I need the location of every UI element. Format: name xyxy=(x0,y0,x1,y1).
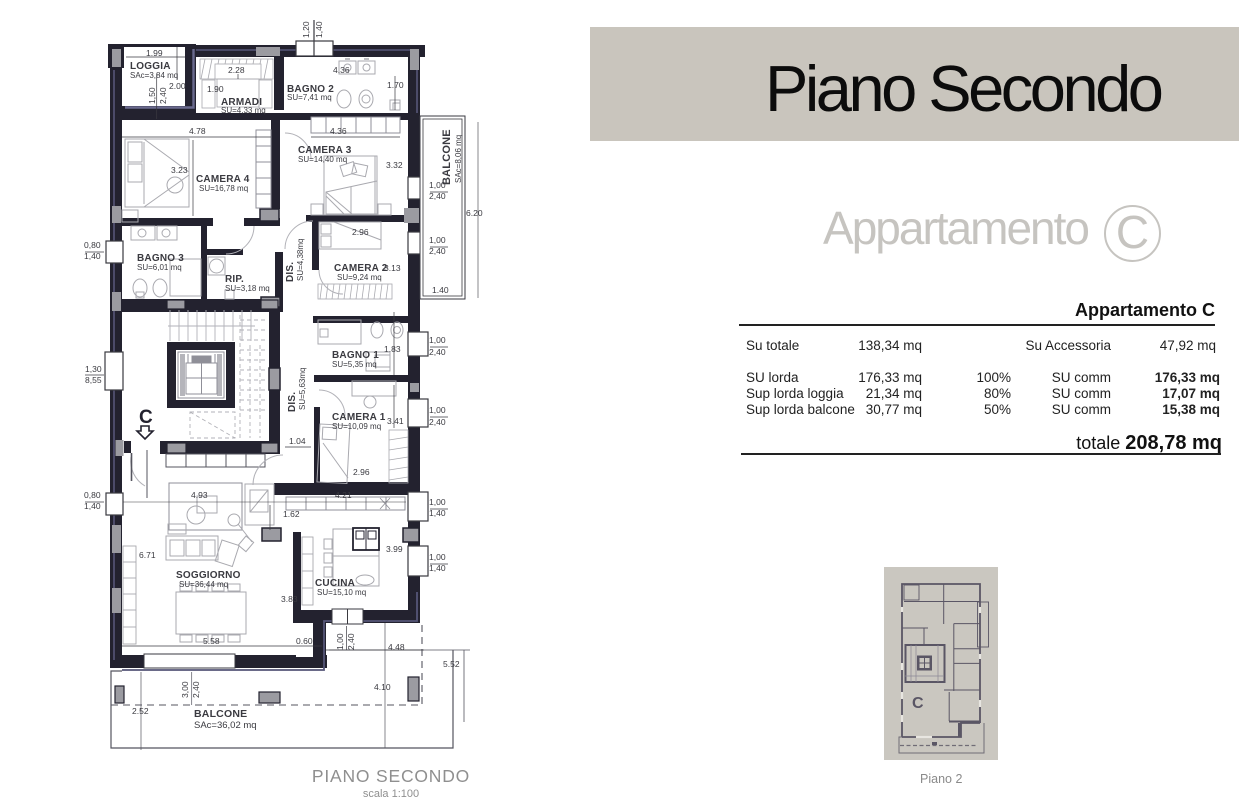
svg-text:1,40: 1,40 xyxy=(429,563,446,573)
svg-text:1.04: 1.04 xyxy=(289,436,306,446)
svg-text:4.78: 4.78 xyxy=(189,126,206,136)
svg-text:DIS.: DIS. xyxy=(285,262,296,282)
svg-text:1,00: 1,00 xyxy=(429,552,446,562)
svg-text:2,40: 2,40 xyxy=(429,246,446,256)
svg-text:SU=6,01 mq: SU=6,01 mq xyxy=(137,263,182,272)
svg-text:SU=4,33 mq: SU=4,33 mq xyxy=(221,106,266,115)
svg-text:4.48: 4.48 xyxy=(388,642,405,652)
svg-text:DIS.: DIS. xyxy=(287,392,298,412)
svg-text:1,00: 1,00 xyxy=(429,180,446,190)
svg-text:SU=9,24 mq: SU=9,24 mq xyxy=(337,273,382,282)
svg-text:1,40: 1,40 xyxy=(314,21,324,38)
svg-text:SU=5,63mq: SU=5,63mq xyxy=(298,368,307,410)
svg-text:1,20: 1,20 xyxy=(301,21,311,38)
svg-text:8,55: 8,55 xyxy=(85,375,102,385)
svg-text:3.13: 3.13 xyxy=(384,263,401,273)
svg-text:1.90: 1.90 xyxy=(207,84,224,94)
svg-text:0,80: 0,80 xyxy=(84,490,101,500)
svg-text:SAc=8,06 mq: SAc=8,06 mq xyxy=(454,135,463,183)
svg-text:SU=15,10 mq: SU=15,10 mq xyxy=(317,588,366,597)
svg-text:4.36: 4.36 xyxy=(330,126,347,136)
svg-text:Piano 2: Piano 2 xyxy=(920,772,962,786)
svg-text:2,40: 2,40 xyxy=(158,87,168,104)
svg-text:1.70: 1.70 xyxy=(387,80,404,90)
svg-text:2.28: 2.28 xyxy=(228,65,245,75)
svg-text:3.32: 3.32 xyxy=(386,160,403,170)
svg-text:0,80: 0,80 xyxy=(84,240,101,250)
svg-text:4.93: 4.93 xyxy=(191,490,208,500)
svg-text:5.58: 5.58 xyxy=(203,636,220,646)
svg-text:BALCONE: BALCONE xyxy=(194,708,247,720)
svg-text:5.52: 5.52 xyxy=(443,659,460,669)
svg-text:1,40: 1,40 xyxy=(429,508,446,518)
svg-text:3.41: 3.41 xyxy=(387,416,404,426)
svg-text:SAc=3,84 mq: SAc=3,84 mq xyxy=(130,71,178,80)
svg-text:SU=36,44 mq: SU=36,44 mq xyxy=(179,580,228,589)
svg-text:4.36: 4.36 xyxy=(333,65,350,75)
svg-text:6.71: 6.71 xyxy=(139,550,156,560)
svg-text:1,50: 1,50 xyxy=(147,87,157,104)
svg-text:1,40: 1,40 xyxy=(84,501,101,511)
svg-text:3.99: 3.99 xyxy=(386,544,403,554)
svg-text:SU=5,35 mq: SU=5,35 mq xyxy=(332,360,377,369)
svg-text:6.20: 6.20 xyxy=(466,208,483,218)
svg-text:2,40: 2,40 xyxy=(191,681,201,698)
svg-text:1,00: 1,00 xyxy=(429,405,446,415)
svg-text:4.10: 4.10 xyxy=(374,682,391,692)
svg-text:4.21: 4.21 xyxy=(335,490,352,500)
svg-text:C: C xyxy=(912,695,924,712)
svg-text:2,40: 2,40 xyxy=(429,417,446,427)
svg-text:2.96: 2.96 xyxy=(352,227,369,237)
svg-text:1,40: 1,40 xyxy=(84,251,101,261)
svg-text:3.83: 3.83 xyxy=(281,594,298,604)
svg-text:1,00: 1,00 xyxy=(429,497,446,507)
svg-text:1.83: 1.83 xyxy=(384,344,401,354)
svg-text:BALCONE: BALCONE xyxy=(441,129,453,185)
svg-text:3.23: 3.23 xyxy=(171,165,188,175)
svg-text:3,00: 3,00 xyxy=(180,681,190,698)
svg-text:SAc=36,02 mq: SAc=36,02 mq xyxy=(194,720,257,731)
svg-text:2.00: 2.00 xyxy=(169,81,186,91)
svg-text:SU=14,40 mq: SU=14,40 mq xyxy=(298,155,347,164)
svg-text:1,00: 1,00 xyxy=(335,633,345,650)
svg-text:C: C xyxy=(139,407,153,428)
svg-text:2.96: 2.96 xyxy=(353,467,370,477)
svg-text:2.52: 2.52 xyxy=(132,706,149,716)
svg-text:SU=10,09 mq: SU=10,09 mq xyxy=(332,422,381,431)
svg-text:SU=4,38mq: SU=4,38mq xyxy=(296,239,305,281)
svg-text:2,40: 2,40 xyxy=(429,347,446,357)
svg-text:2,40: 2,40 xyxy=(429,191,446,201)
svg-text:1,00: 1,00 xyxy=(429,235,446,245)
svg-text:1.40: 1.40 xyxy=(432,285,449,295)
svg-text:SU=3,18 mq: SU=3,18 mq xyxy=(225,284,270,293)
svg-text:SU=7,41 mq: SU=7,41 mq xyxy=(287,93,332,102)
svg-text:1,30: 1,30 xyxy=(85,364,102,374)
svg-text:0.60: 0.60 xyxy=(296,636,313,646)
svg-text:1.99: 1.99 xyxy=(146,48,163,58)
svg-text:SU=16,78 mq: SU=16,78 mq xyxy=(199,184,248,193)
svg-text:2,40: 2,40 xyxy=(346,633,356,650)
svg-text:1,00: 1,00 xyxy=(429,335,446,345)
svg-text:1.62: 1.62 xyxy=(283,509,300,519)
